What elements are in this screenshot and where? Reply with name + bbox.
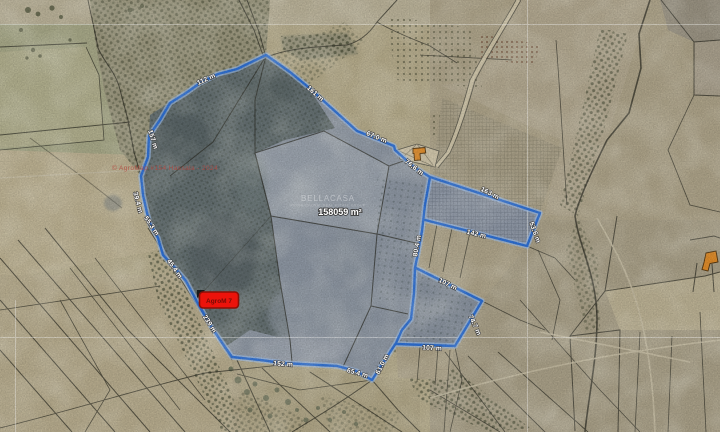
svg-text:AgroM 7: AgroM 7: [206, 298, 232, 305]
svg-text:158059 m²: 158059 m²: [318, 207, 362, 217]
svg-text:152 m: 152 m: [273, 360, 293, 368]
svg-text:107 m: 107 m: [422, 344, 442, 352]
svg-text:BELLACASA: BELLACASA: [301, 194, 355, 203]
svg-text:© AgroMap #154 Hassala - 2024: © AgroMap #154 Hassala - 2024: [112, 164, 218, 172]
